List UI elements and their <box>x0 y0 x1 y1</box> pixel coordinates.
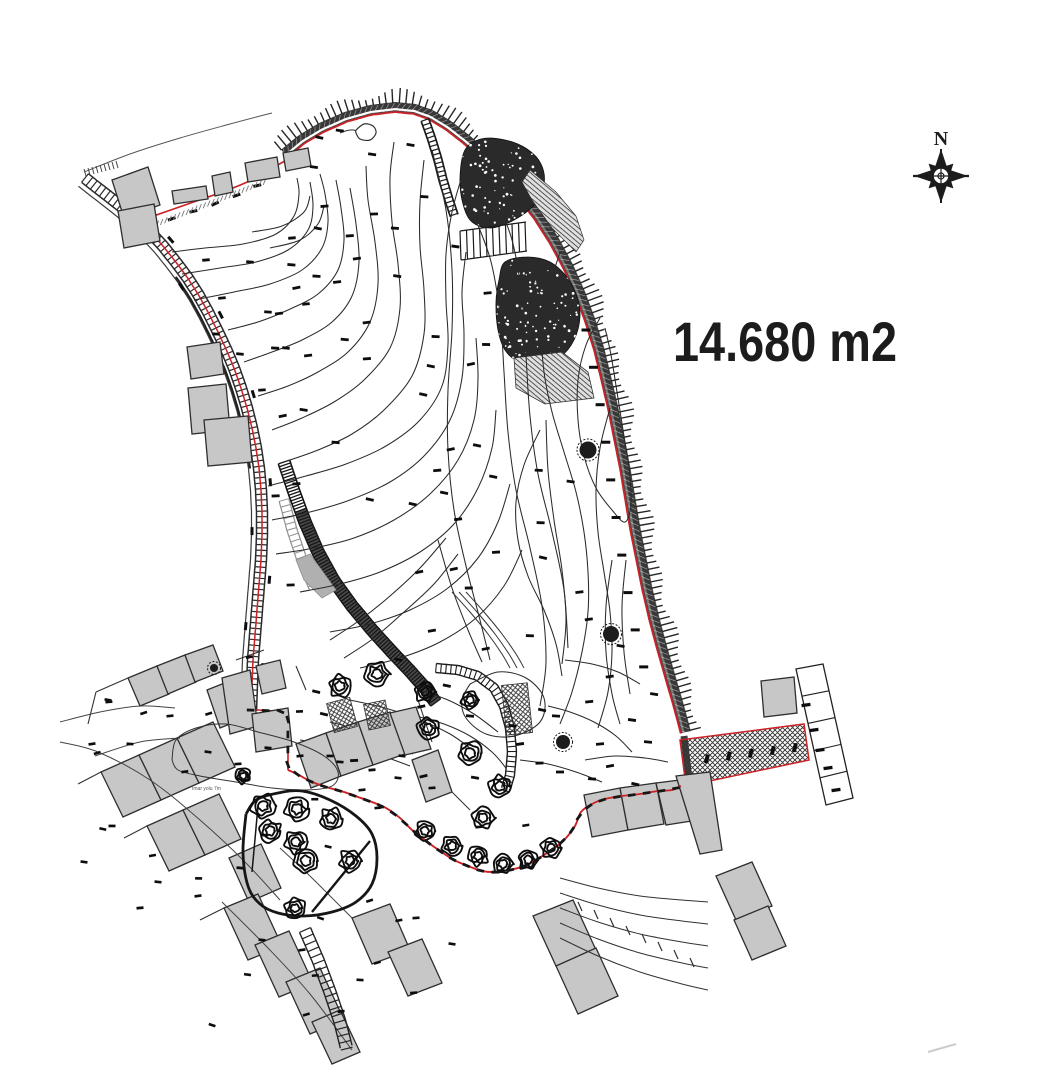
svg-text:14.680 m2: 14.680 m2 <box>673 310 897 373</box>
svg-text:N: N <box>934 128 949 150</box>
svg-text:İmar yolu 7m: İmar yolu 7m <box>192 785 221 792</box>
